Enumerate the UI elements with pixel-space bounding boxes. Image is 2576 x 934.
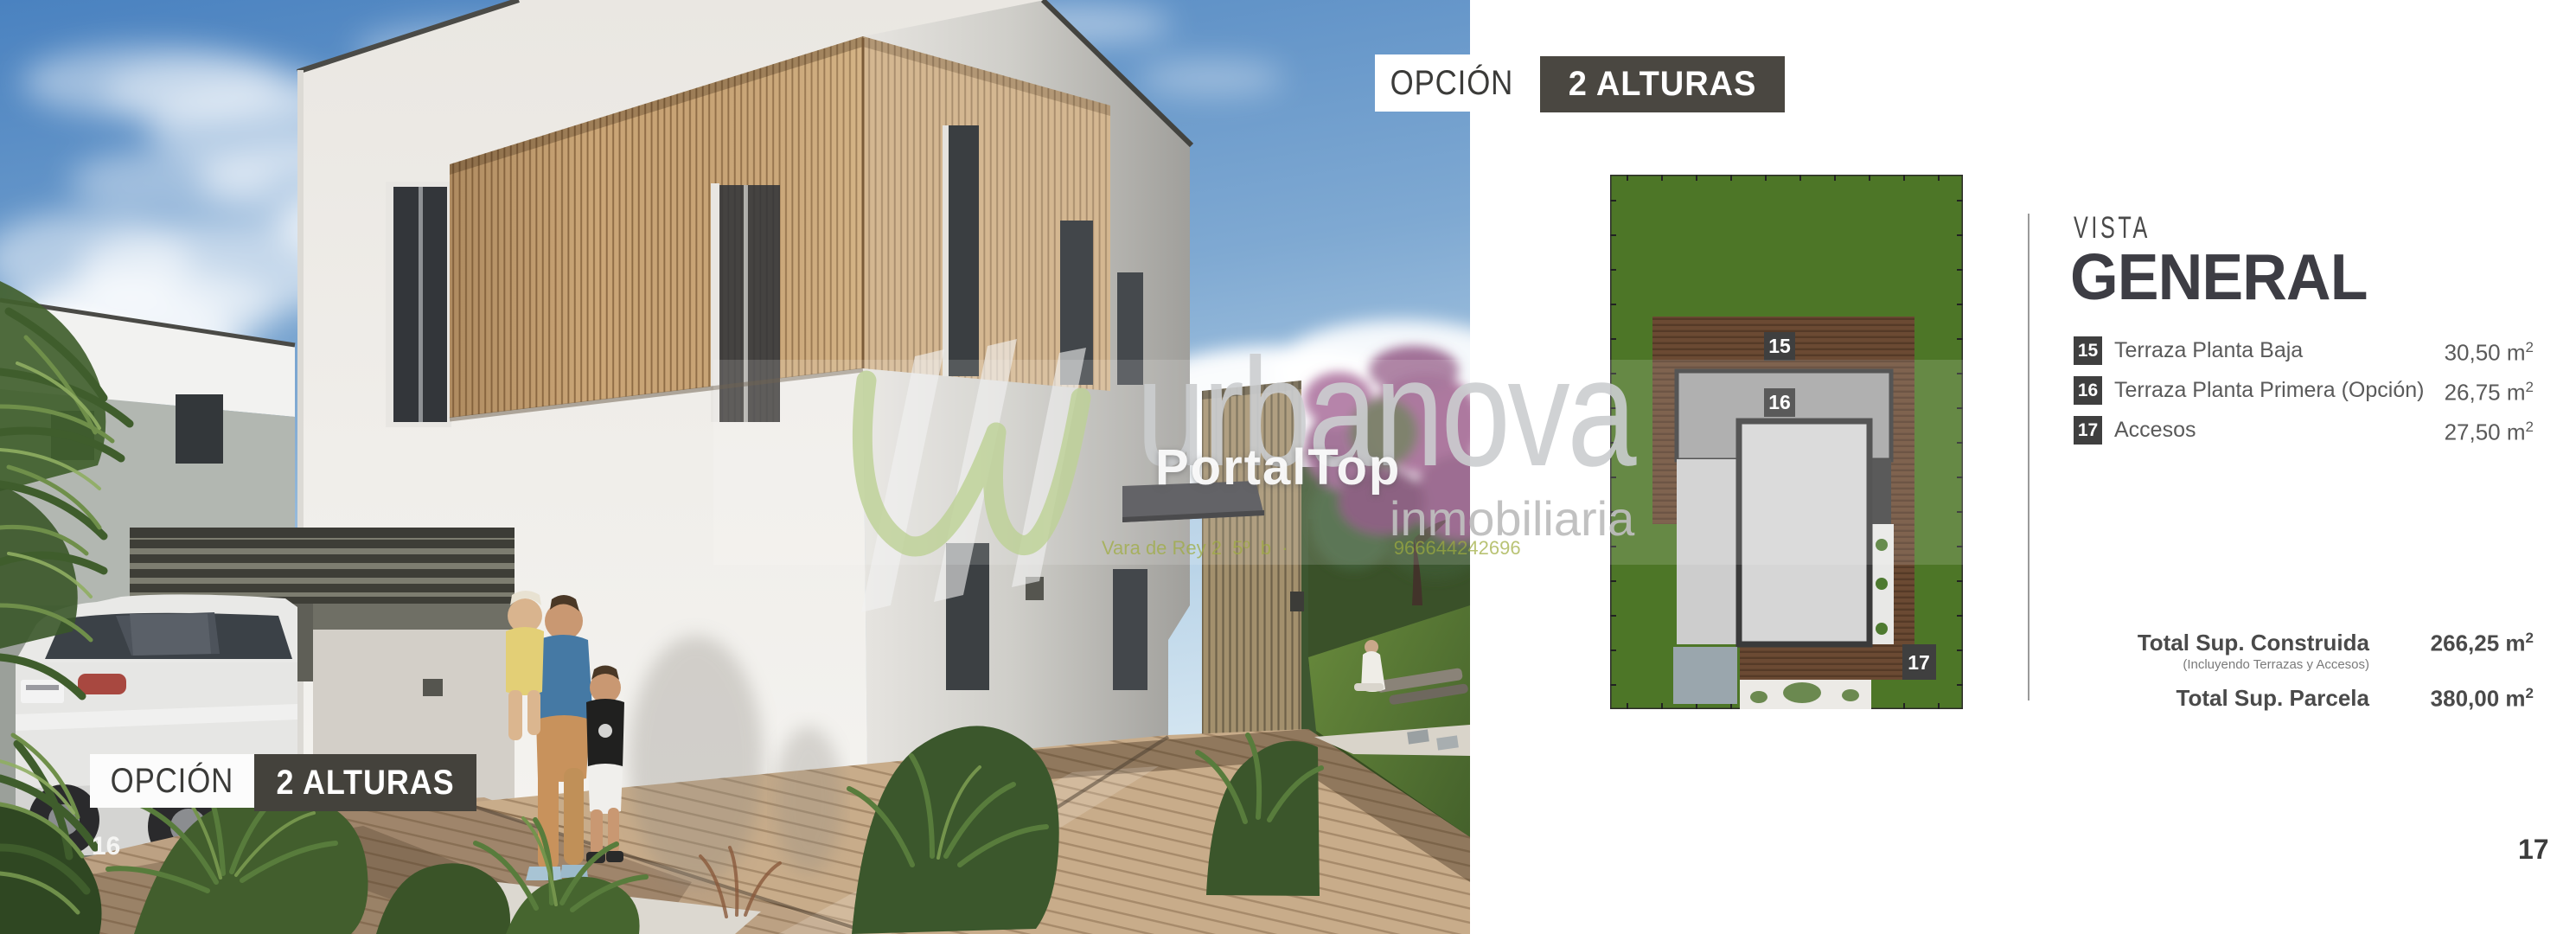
svg-text:15: 15 [1768, 335, 1791, 357]
svg-text:17: 17 [1908, 651, 1930, 674]
